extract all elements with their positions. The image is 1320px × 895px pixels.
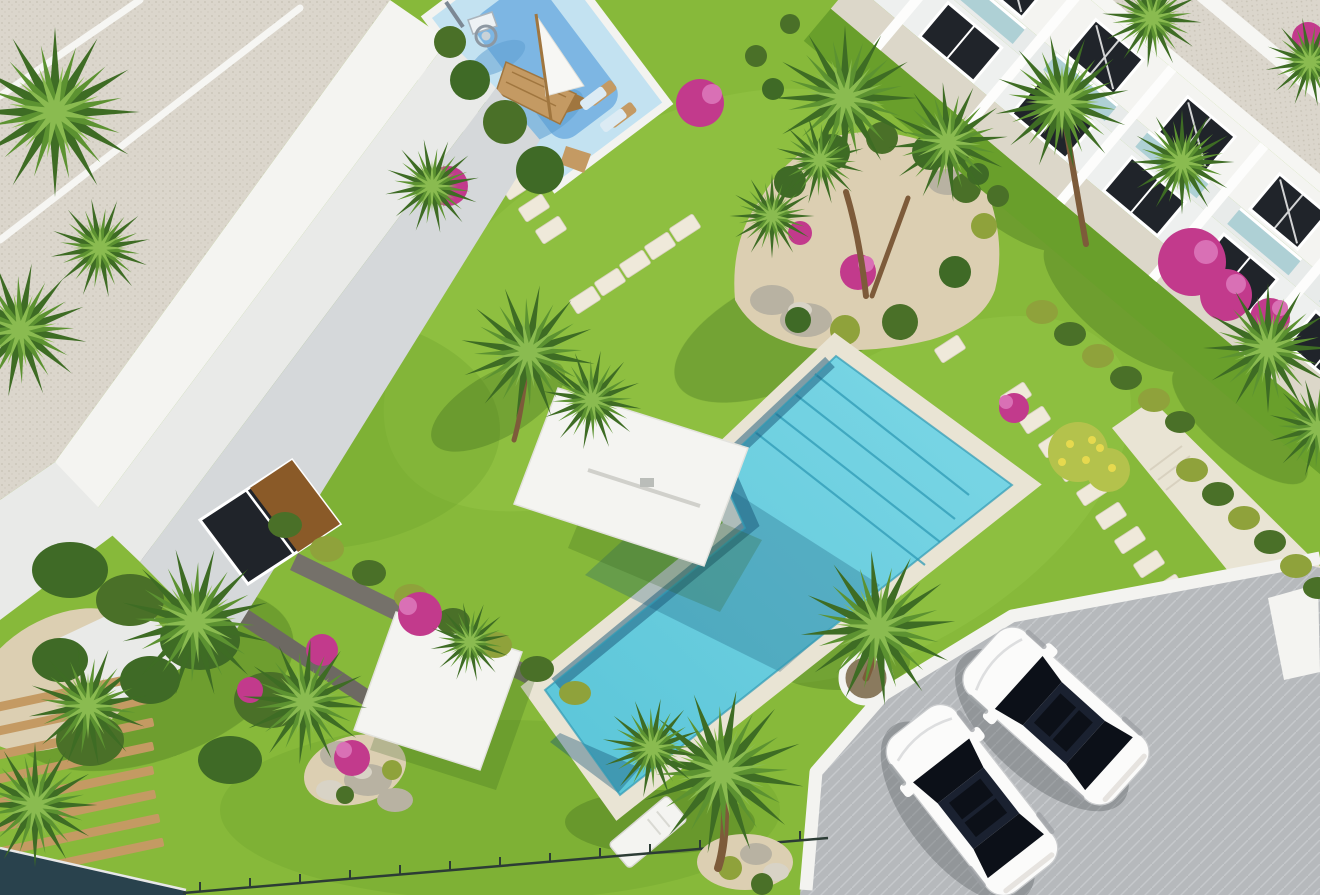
aerial-render-image	[0, 0, 1320, 895]
render-canvas	[0, 0, 1320, 895]
